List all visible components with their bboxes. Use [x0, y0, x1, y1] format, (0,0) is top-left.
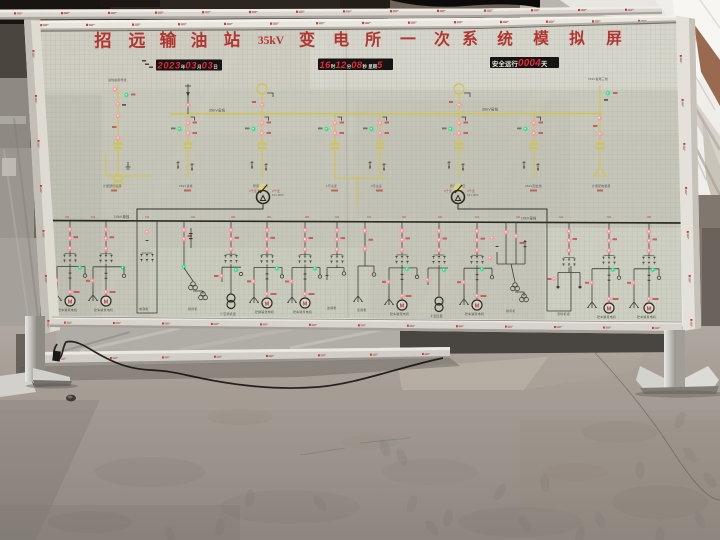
svg-text:2号主变: 2号主变 [371, 184, 382, 188]
svg-text:3千变: 3千变 [249, 189, 257, 193]
svg-text:M: M [303, 301, 308, 307]
svg-text:远: 远 [129, 31, 146, 50]
svg-text:061: 061 [267, 215, 272, 219]
svg-text:砼车罐泵电机: 砼车罐泵电机 [293, 309, 312, 314]
svg-text:M: M [475, 303, 480, 309]
svg-text:这用柜: 这用柜 [327, 305, 337, 310]
svg-text:所: 所 [365, 31, 381, 49]
svg-text:模: 模 [533, 29, 549, 48]
svg-text:10kV母线: 10kV母线 [521, 216, 537, 221]
svg-text:S11-M80: S11-M80 [272, 194, 284, 197]
svg-text:次: 次 [434, 29, 450, 48]
svg-text:071: 071 [367, 215, 372, 219]
svg-text:M: M [104, 299, 109, 305]
svg-text:①空调机组: ①空调机组 [220, 311, 236, 316]
svg-text:站: 站 [224, 30, 241, 50]
svg-text:砼车罐泵电机: 砼车罐泵电机 [58, 307, 77, 312]
svg-text:计量屏培训屏: 计量屏培训屏 [103, 184, 122, 188]
svg-text:砼罐输送电机: 砼罐输送电机 [255, 309, 274, 314]
svg-text:砼车罐泵电机: 砼车罐泵电机 [597, 314, 616, 319]
svg-text:061: 061 [438, 215, 443, 219]
svg-text:031: 031 [516, 215, 521, 219]
svg-text:湿喷机组: 湿喷机组 [557, 311, 570, 316]
svg-text:3千变: 3千变 [467, 189, 475, 193]
svg-text:021: 021 [191, 215, 196, 219]
svg-text:电容柜: 电容柜 [139, 306, 149, 311]
svg-text:变: 变 [299, 30, 316, 49]
svg-text:S11-M80: S11-M80 [467, 194, 479, 197]
svg-text:M: M [265, 301, 270, 307]
svg-text:081: 081 [647, 215, 652, 219]
svg-text:3千变: 3千变 [272, 189, 280, 193]
svg-text:3千变: 3千变 [444, 189, 452, 193]
svg-text:屏: 屏 [606, 29, 622, 47]
svg-text:油: 油 [191, 30, 208, 50]
svg-text:系: 系 [462, 30, 478, 48]
svg-text:021: 021 [335, 215, 340, 219]
svg-text:砼车罐泵电机: 砼车罐泵电机 [465, 311, 484, 316]
svg-text:021: 021 [65, 215, 70, 219]
svg-text:071: 071 [475, 215, 480, 219]
svg-text:1号主变: 1号主变 [326, 184, 337, 188]
svg-text:061: 061 [402, 215, 407, 219]
svg-text:M: M [607, 306, 612, 312]
svg-text:电: 电 [333, 30, 349, 49]
svg-text:35kV母线: 35kV母线 [209, 108, 226, 113]
svg-text:排风机: 排风机 [506, 308, 516, 313]
svg-text:进线备用母线: 进线备用母线 [108, 78, 127, 82]
svg-text:011: 011 [559, 215, 564, 219]
svg-text:35kV配出线: 35kV配出线 [525, 184, 542, 188]
svg-text:砼车罐泵电机: 砼车罐泵电机 [390, 311, 409, 316]
svg-text:35kV进线: 35kV进线 [179, 184, 193, 188]
svg-text:统: 统 [497, 29, 513, 48]
svg-text:招: 招 [94, 31, 111, 51]
svg-text:061: 061 [231, 215, 236, 219]
svg-text:2023年03月03日: 2023年03月03日 [157, 59, 218, 70]
svg-text:一: 一 [400, 32, 416, 49]
svg-text:M: M [68, 299, 73, 305]
svg-text:输: 输 [160, 30, 177, 50]
svg-text:砼车罐泵电机: 砼车罐泵电机 [94, 307, 113, 312]
svg-text:011: 011 [145, 215, 150, 219]
svg-text:计量配电量屏: 计量配电量屏 [592, 184, 611, 188]
svg-text:011: 011 [91, 215, 96, 219]
svg-text:排风机: 排风机 [188, 306, 198, 311]
svg-text:砼车罐泵电机: 砼车罐泵电机 [637, 314, 656, 319]
svg-text:M: M [647, 306, 652, 312]
svg-text:10kV母线: 10kV母线 [114, 214, 130, 219]
svg-text:变用柜: 变用柜 [357, 307, 367, 312]
svg-text:M: M [400, 303, 405, 309]
svg-text:35kV母线: 35kV母线 [482, 107, 499, 112]
svg-text:35kV: 35kV [258, 35, 285, 47]
svg-text:081: 081 [305, 215, 310, 219]
svg-text:041: 041 [607, 215, 612, 219]
svg-text:拟: 拟 [569, 29, 585, 48]
svg-text:②变压器: ②变压器 [430, 313, 443, 318]
svg-text:35kV备用三线: 35kV备用三线 [588, 77, 608, 81]
